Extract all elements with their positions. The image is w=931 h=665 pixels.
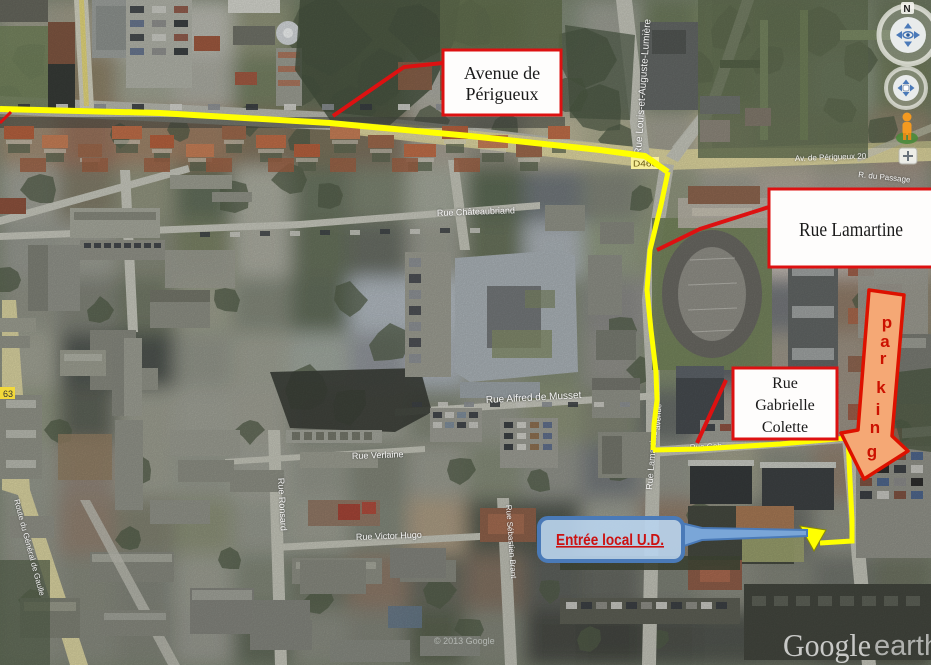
svg-text:Rue Lamartine: Rue Lamartine [799, 219, 903, 241]
svg-text:p: p [882, 313, 892, 332]
svg-text:63: 63 [3, 389, 13, 399]
svg-text:Google: Google [783, 627, 871, 663]
svg-text:g: g [867, 442, 877, 461]
svg-text:k: k [876, 378, 886, 397]
svg-text:Colette: Colette [762, 419, 808, 436]
svg-text:Périgueux: Périgueux [466, 84, 539, 104]
svg-text:Rue: Rue [772, 375, 798, 392]
svg-text:Avenue de: Avenue de [464, 63, 540, 83]
svg-text:r: r [880, 349, 887, 368]
svg-text:n: n [870, 418, 880, 437]
svg-text:Gabrielle: Gabrielle [755, 397, 815, 414]
svg-text:Rue Verlaine: Rue Verlaine [352, 449, 404, 461]
svg-text:Entrée local U.D.: Entrée local U.D. [556, 532, 664, 549]
svg-text:i: i [876, 400, 881, 419]
svg-text:© 2013 Google: © 2013 Google [434, 636, 495, 646]
svg-text:earth: earth [874, 630, 931, 662]
svg-text:N: N [903, 4, 910, 15]
